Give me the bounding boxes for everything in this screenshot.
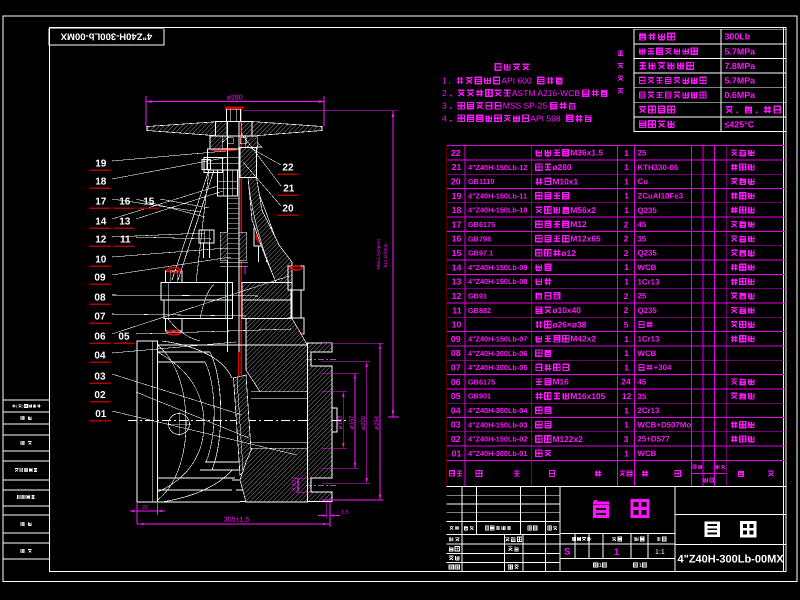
svg-text:4"Z40H-150Lb-07: 4"Z40H-150Lb-07 xyxy=(468,335,527,344)
svg-text:02: 02 xyxy=(451,434,461,444)
svg-text:GB91: GB91 xyxy=(468,292,487,301)
svg-text:08: 08 xyxy=(94,293,106,304)
svg-text:35: 35 xyxy=(638,234,647,243)
svg-text:13: 13 xyxy=(119,217,131,228)
svg-text:14: 14 xyxy=(95,217,107,228)
svg-text:4"Z40H-300Lb-00MX: 4"Z40H-300Lb-00MX xyxy=(60,30,152,41)
svg-text:4"Z40H-150Lb-09: 4"Z40H-150Lb-09 xyxy=(468,263,527,272)
svg-text:WCB: WCB xyxy=(638,449,657,458)
svg-text:2: 2 xyxy=(624,291,629,301)
svg-text:21: 21 xyxy=(452,162,462,172)
svg-text:2: 2 xyxy=(624,248,629,258)
svg-text:M56x2: M56x2 xyxy=(570,205,596,215)
svg-text:M42x2: M42x2 xyxy=(570,334,596,344)
svg-text:1: 1 xyxy=(624,348,629,358)
svg-text:04: 04 xyxy=(94,351,106,362)
svg-text:KTH330-06: KTH330-06 xyxy=(638,163,679,172)
svg-text:19: 19 xyxy=(95,159,107,170)
svg-text:07: 07 xyxy=(451,363,461,373)
svg-text:GB798: GB798 xyxy=(468,234,491,243)
svg-text:1.5: 1.5 xyxy=(341,510,349,516)
svg-text:GB6175: GB6175 xyxy=(468,220,495,229)
svg-text:1: 1 xyxy=(624,334,629,344)
svg-text:02: 02 xyxy=(94,390,106,401)
svg-text:03: 03 xyxy=(451,420,461,430)
svg-text:GB97.1: GB97.1 xyxy=(468,249,493,258)
svg-text:ø254: ø254 xyxy=(374,415,381,429)
svg-text:3: 3 xyxy=(442,101,447,111)
svg-text:GB1110: GB1110 xyxy=(468,177,494,186)
svg-text:10: 10 xyxy=(452,320,462,330)
svg-text:4: 4 xyxy=(442,113,447,123)
svg-text:45: 45 xyxy=(638,378,647,387)
svg-text:1: 1 xyxy=(624,420,629,430)
svg-text:1: 1 xyxy=(624,448,629,458)
svg-text:4"Z40H-150Lb-03: 4"Z40H-150Lb-03 xyxy=(468,420,527,429)
svg-text:4"Z40H-300Lb-00MX: 4"Z40H-300Lb-00MX xyxy=(678,554,785,566)
svg-text:4"Z40H-300Lb-05: 4"Z40H-300Lb-05 xyxy=(468,363,527,372)
svg-text:2: 2 xyxy=(624,219,629,229)
svg-text:11: 11 xyxy=(120,235,131,246)
svg-text:ø102: ø102 xyxy=(337,415,344,429)
svg-text:22: 22 xyxy=(142,505,148,511)
svg-text:1: 1 xyxy=(624,162,629,172)
svg-text:Cu: Cu xyxy=(638,177,649,186)
svg-text:01: 01 xyxy=(452,448,462,458)
svg-text:ø200: ø200 xyxy=(360,415,367,429)
svg-text:1: 1 xyxy=(624,191,629,201)
svg-text:M12: M12 xyxy=(570,219,587,229)
svg-text:45: 45 xyxy=(638,220,647,229)
svg-text:20: 20 xyxy=(282,204,294,215)
svg-text:ø280: ø280 xyxy=(553,162,572,172)
svg-text:M10x1: M10x1 xyxy=(553,176,579,186)
svg-text:25+D577: 25+D577 xyxy=(638,435,671,444)
svg-text:03: 03 xyxy=(94,372,106,383)
svg-text:1: 1 xyxy=(624,148,629,158)
svg-text:18: 18 xyxy=(452,205,462,215)
svg-text:08: 08 xyxy=(451,348,461,358)
svg-text:5.7MPa: 5.7MPa xyxy=(725,46,756,56)
svg-text:WCB: WCB xyxy=(638,349,657,358)
svg-text:04: 04 xyxy=(451,405,461,415)
svg-text:300Lb: 300Lb xyxy=(725,32,751,42)
svg-text:ASTM A216-WCB: ASTM A216-WCB xyxy=(512,88,580,98)
svg-text:17: 17 xyxy=(452,219,462,229)
svg-text:06: 06 xyxy=(451,377,461,387)
svg-text:4"Z40H-300Lb-04: 4"Z40H-300Lb-04 xyxy=(468,406,528,415)
svg-text:1: 1 xyxy=(599,563,602,569)
svg-text:WCB+D507Mo: WCB+D507Mo xyxy=(638,420,692,429)
svg-text:1: 1 xyxy=(442,76,447,86)
svg-text:GB901: GB901 xyxy=(468,392,491,401)
svg-text:1: 1 xyxy=(624,205,629,215)
svg-text:GB6175: GB6175 xyxy=(468,377,495,386)
svg-text:1: 1 xyxy=(639,563,642,569)
svg-text:ZCuAl10Fe3: ZCuAl10Fe3 xyxy=(638,191,684,200)
svg-text:1:1: 1:1 xyxy=(655,549,665,556)
svg-text:09: 09 xyxy=(94,273,106,284)
svg-text:≤425°C: ≤425°C xyxy=(725,119,755,129)
svg-text:12: 12 xyxy=(452,291,462,301)
svg-text:Q235: Q235 xyxy=(638,206,658,215)
svg-text:Q235: Q235 xyxy=(638,306,658,315)
svg-text:25: 25 xyxy=(638,292,647,301)
svg-text:12: 12 xyxy=(622,391,632,401)
svg-text:5: 5 xyxy=(624,320,629,330)
svg-text:06: 06 xyxy=(94,332,106,343)
svg-text:612.5(Shut): 612.5(Shut) xyxy=(383,243,388,267)
svg-text:GB882: GB882 xyxy=(468,306,491,315)
svg-text:05: 05 xyxy=(451,391,461,401)
svg-text:4"Z40H-300Lb-01: 4"Z40H-300Lb-01 xyxy=(468,449,527,458)
svg-text:WCB: WCB xyxy=(638,263,657,272)
svg-text:API 598: API 598 xyxy=(530,113,561,123)
svg-text:10: 10 xyxy=(95,255,107,266)
svg-text:35: 35 xyxy=(638,392,647,401)
svg-text:09: 09 xyxy=(451,334,461,344)
svg-text:M16x105: M16x105 xyxy=(570,391,605,401)
svg-text:1Cr13: 1Cr13 xyxy=(638,277,661,286)
svg-text:2: 2 xyxy=(624,234,629,244)
svg-text:1: 1 xyxy=(624,176,629,186)
svg-text:S: S xyxy=(564,547,570,558)
svg-text:M16: M16 xyxy=(553,377,570,387)
svg-text:5.7MPa: 5.7MPa xyxy=(725,76,756,86)
svg-text:8-ø22: 8-ø22 xyxy=(291,477,297,491)
svg-text:05: 05 xyxy=(118,332,130,343)
svg-text:API 600: API 600 xyxy=(501,76,532,86)
svg-text:ø10x40: ø10x40 xyxy=(553,305,582,315)
svg-text:12: 12 xyxy=(95,235,107,246)
svg-text:ø280: ø280 xyxy=(227,95,243,102)
svg-text:ø26×ø38: ø26×ø38 xyxy=(553,319,587,329)
svg-text:19: 19 xyxy=(452,191,462,201)
svg-text:17: 17 xyxy=(95,197,107,208)
svg-text:1: 1 xyxy=(614,547,620,558)
svg-text:0.6MPa: 0.6MPa xyxy=(725,90,756,100)
svg-text:25: 25 xyxy=(638,149,647,158)
svg-text:11: 11 xyxy=(452,305,461,315)
svg-text:ø157: ø157 xyxy=(349,415,356,429)
svg-text:4"Z40H-150Lb-08: 4"Z40H-150Lb-08 xyxy=(468,277,527,286)
svg-text:4"Z40H-150Lb-02: 4"Z40H-150Lb-02 xyxy=(468,435,527,444)
svg-text:MSS SP-25: MSS SP-25 xyxy=(503,101,548,111)
svg-text:4"Z40H-150Lb-10: 4"Z40H-150Lb-10 xyxy=(468,206,527,215)
svg-text:2: 2 xyxy=(442,88,447,98)
svg-text:1: 1 xyxy=(624,362,629,372)
svg-text:07: 07 xyxy=(94,312,106,323)
svg-text:Q235: Q235 xyxy=(638,249,658,258)
svg-text:4"Z40H-300Lb-06: 4"Z40H-300Lb-06 xyxy=(468,349,527,358)
svg-text:22: 22 xyxy=(451,148,461,158)
svg-text:305±1.5: 305±1.5 xyxy=(224,517,249,524)
svg-text:13: 13 xyxy=(452,277,462,287)
svg-text:M36x1.5: M36x1.5 xyxy=(570,148,603,158)
svg-text:ø12: ø12 xyxy=(561,248,576,258)
svg-text:4"Z40H-150Lb-11: 4"Z40H-150Lb-11 xyxy=(468,191,527,200)
svg-text:20: 20 xyxy=(451,177,461,187)
svg-text:4"Z40H-150Lb-12: 4"Z40H-150Lb-12 xyxy=(468,163,527,172)
svg-text:2: 2 xyxy=(624,305,629,315)
svg-text:+304: +304 xyxy=(654,363,672,372)
svg-text:3: 3 xyxy=(624,434,629,444)
svg-text:2Cr13: 2Cr13 xyxy=(638,406,661,415)
svg-text:24: 24 xyxy=(621,377,631,387)
svg-text:1: 1 xyxy=(624,262,629,272)
svg-text:18: 18 xyxy=(95,177,107,188)
svg-text:1Cr13: 1Cr13 xyxy=(638,335,661,344)
svg-text:M12x65: M12x65 xyxy=(570,234,601,244)
svg-text:15: 15 xyxy=(452,248,462,258)
svg-text:1: 1 xyxy=(624,277,629,287)
svg-text:16: 16 xyxy=(452,234,462,244)
svg-text:21: 21 xyxy=(283,184,295,195)
svg-text:M122x2: M122x2 xyxy=(553,434,584,444)
svg-text:495±1.5(Open): 495±1.5(Open) xyxy=(376,239,381,270)
svg-text:1: 1 xyxy=(624,405,629,415)
svg-text:14: 14 xyxy=(452,262,462,272)
svg-text:01: 01 xyxy=(95,409,107,420)
svg-text:15: 15 xyxy=(143,197,155,208)
svg-text:7.8MPa: 7.8MPa xyxy=(725,61,756,71)
svg-text:22: 22 xyxy=(282,163,294,174)
svg-text:16: 16 xyxy=(119,197,131,208)
